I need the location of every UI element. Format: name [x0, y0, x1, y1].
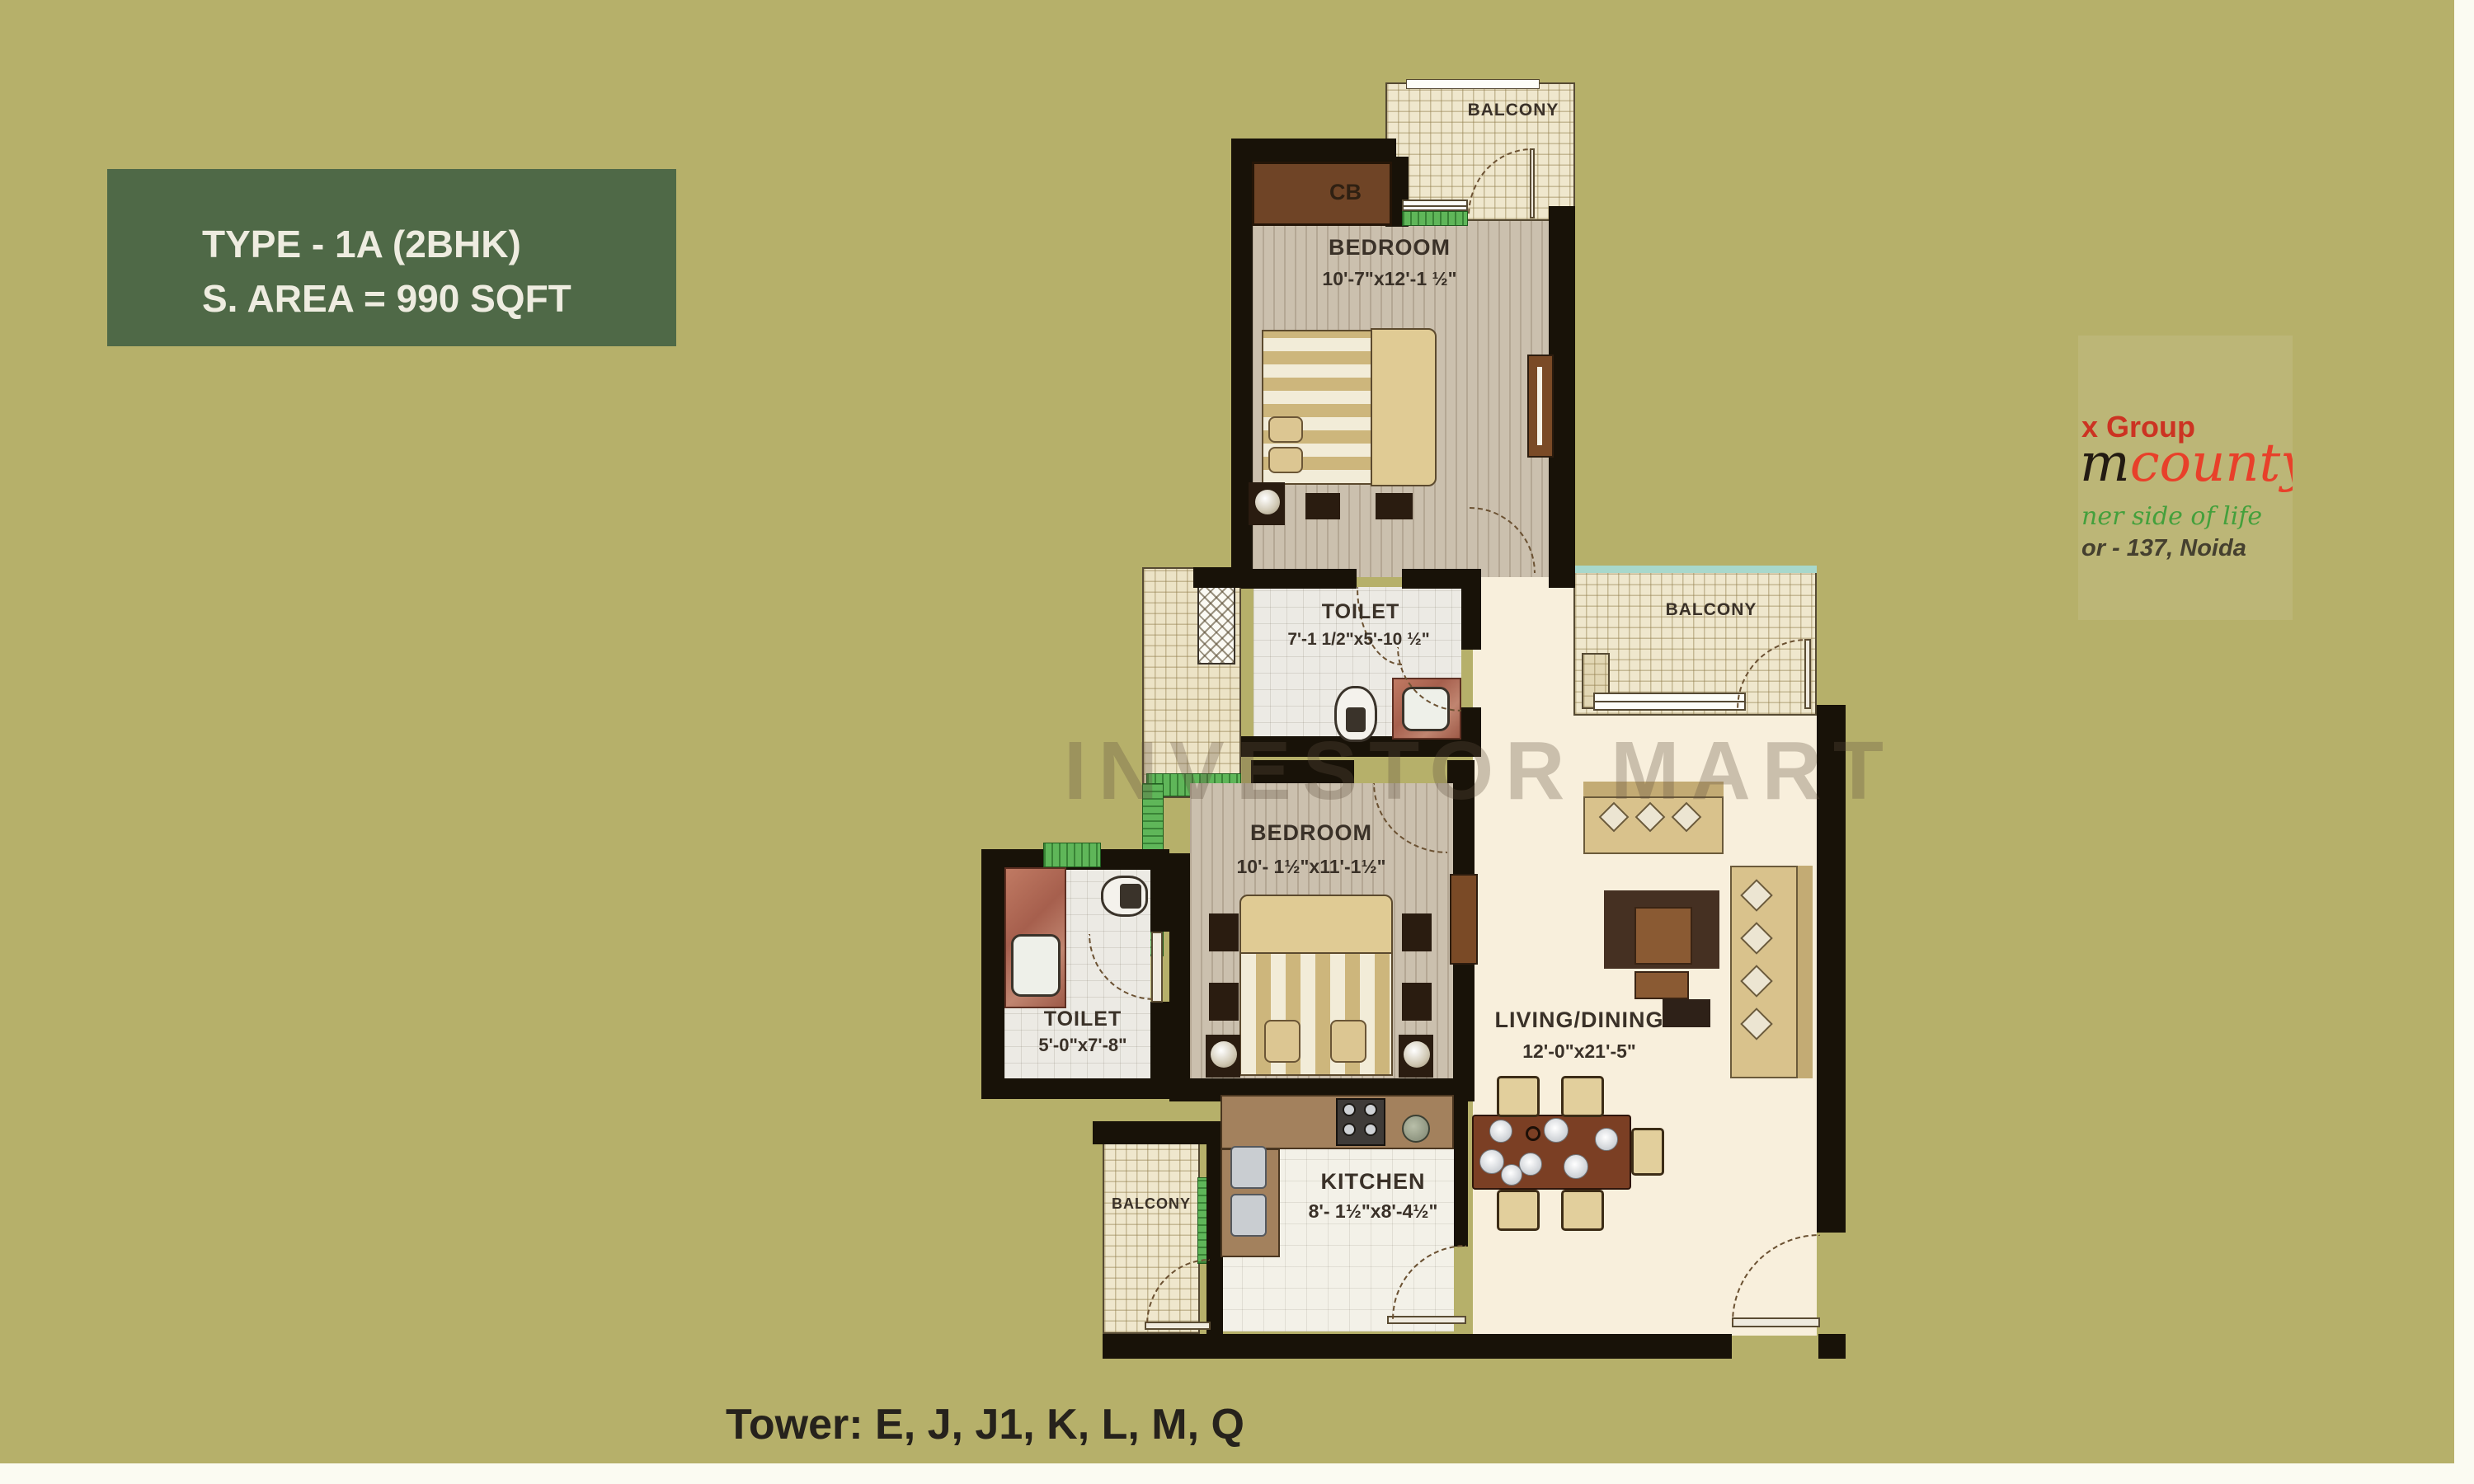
washbasin-left: [1011, 934, 1061, 997]
lamp: [1404, 1041, 1430, 1068]
kitchen-dim: 8'- 1½"x8'-4½": [1274, 1200, 1472, 1223]
coffee-table: [1634, 907, 1692, 965]
builder-logo: x Group mcounty ner side of life or - 13…: [2078, 336, 2293, 620]
wall: [981, 1078, 1169, 1099]
plant-decor: [1402, 1115, 1430, 1143]
plate: [1595, 1128, 1618, 1151]
plate: [1564, 1154, 1588, 1179]
living-dining-dim: 12'-0"x21'-5": [1501, 1040, 1658, 1063]
plate: [1479, 1149, 1504, 1174]
wc-left-seat: [1120, 884, 1141, 909]
bed-mid-headboard: [1239, 895, 1393, 954]
table-decor: [1526, 1126, 1540, 1141]
toilet-left-vent: [1043, 843, 1101, 867]
unit-type: TYPE - 1A (2BHK): [202, 217, 571, 271]
dining-chair: [1561, 1190, 1604, 1231]
living-balcony-window: [1593, 693, 1746, 711]
plate: [1489, 1120, 1512, 1143]
living-side-window: [1450, 874, 1478, 965]
balcony-right-label: BALCONY: [1658, 600, 1765, 620]
plate: [1501, 1164, 1522, 1186]
wardrobe-cb-label: CB: [1329, 180, 1362, 205]
stool: [1376, 493, 1413, 519]
dining-chair: [1497, 1190, 1540, 1231]
toilet-top-dim: 7'-1 1/2"x5'-10 ½": [1249, 630, 1468, 650]
bedroom-mid-dim: 10'- 1½"x11'-1½": [1204, 856, 1418, 878]
title-text: TYPE - 1A (2BHK) S. AREA = 990 SQFT: [202, 217, 571, 326]
toilet-left-dim: 5'-0"x7'-8": [1013, 1035, 1153, 1056]
dining-chair: [1497, 1076, 1540, 1117]
pillow: [1264, 1020, 1300, 1063]
kitchen-sink: [1230, 1146, 1267, 1189]
plate: [1544, 1118, 1569, 1143]
nightstand: [1209, 983, 1239, 1021]
balcony-top-window: [1406, 79, 1540, 89]
burner: [1364, 1123, 1377, 1136]
wall: [1103, 1334, 1732, 1359]
bedroom-top-label: BEDROOM: [1286, 235, 1493, 261]
wall: [981, 849, 1004, 1097]
sofa-right-back: [1796, 866, 1813, 1078]
wall: [1093, 1121, 1223, 1144]
logo-address: or - 137, Noida: [2081, 535, 2246, 562]
unit-area: S. AREA = 990 SQFT: [202, 271, 571, 326]
wall: [1169, 853, 1190, 1101]
balcony-top-label: BALCONY: [1460, 101, 1567, 120]
burner: [1364, 1103, 1377, 1116]
tower-list: Tower: E, J, J1, K, L, M, Q: [726, 1400, 1244, 1449]
nightstand: [1402, 913, 1432, 951]
wardrobe-cb: [1252, 162, 1392, 226]
title-box: TYPE - 1A (2BHK) S. AREA = 990 SQFT: [107, 169, 676, 346]
wall: [1231, 139, 1396, 163]
wall: [1150, 849, 1169, 932]
wall: [1150, 1002, 1169, 1080]
window-sill: [1402, 211, 1468, 226]
wall: [1454, 1095, 1468, 1247]
dining-chair: [1561, 1076, 1604, 1117]
bedroom-top-dim: 10'-7"x12'-1 ½": [1262, 268, 1517, 290]
balcony-right-edge: [1573, 566, 1817, 573]
side-table: [1634, 971, 1689, 999]
bedroom-mid-label: BEDROOM: [1221, 820, 1402, 846]
wall: [1193, 567, 1243, 588]
toilet-top-label: TOILET: [1286, 600, 1435, 624]
bedroom-balcony-window: [1402, 200, 1468, 211]
bed-top-headboard: [1371, 328, 1437, 486]
watermark: INVESTOR MART: [1064, 724, 1806, 819]
bedroom-top-window-glass: [1537, 367, 1542, 445]
balcony-bottom-label: BALCONY: [1106, 1195, 1197, 1213]
burner: [1343, 1103, 1356, 1116]
pillow: [1330, 1020, 1366, 1063]
pillow: [1268, 416, 1303, 443]
burner: [1343, 1123, 1356, 1136]
nightstand: [1402, 983, 1432, 1021]
dining-chair: [1631, 1128, 1664, 1176]
toilet-left-label: TOILET: [1021, 1007, 1145, 1031]
kitchen-sink: [1230, 1194, 1267, 1237]
living-dining-label: LIVING/DINING: [1484, 1007, 1674, 1033]
plate: [1519, 1153, 1542, 1176]
wall: [1241, 569, 1357, 589]
kitchen-label: KITCHEN: [1303, 1169, 1443, 1195]
bed-mid: [1239, 952, 1393, 1076]
lamp: [1211, 1041, 1237, 1068]
stool: [1305, 493, 1340, 519]
logo-tagline: ner side of life: [2081, 502, 2262, 531]
duct-shaft: [1197, 582, 1235, 665]
logo-brand-line: mcounty: [2080, 433, 2293, 494]
pillow: [1268, 447, 1303, 473]
wall: [1818, 1334, 1846, 1359]
nightstand: [1209, 913, 1239, 951]
lamp: [1255, 490, 1280, 514]
